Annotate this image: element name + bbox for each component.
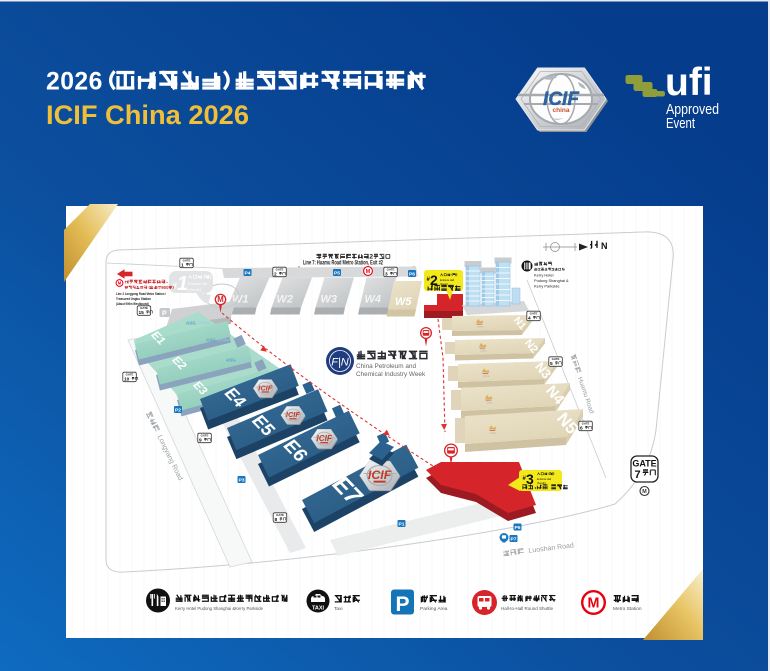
svg-text:CHINA: CHINA	[197, 321, 211, 326]
svg-text:Metro Station: Metro Station	[613, 606, 642, 612]
svg-text:Kerry Hotel: Kerry Hotel	[534, 273, 554, 278]
svg-text:GATE: GATE	[276, 268, 284, 272]
svg-text:GATE: GATE	[140, 306, 148, 310]
svg-text:Kerry Hotel Pudong Shanghai &K: Kerry Hotel Pudong Shanghai &Kerry Parks…	[175, 606, 263, 612]
svg-text:8: 8	[274, 517, 277, 523]
svg-text:Event: Event	[666, 116, 695, 132]
svg-text:0: 0	[60, 68, 74, 95]
svg-text:China: China	[486, 401, 493, 404]
svg-text:F|N: F|N	[331, 357, 349, 369]
svg-text:GATE: GATE	[387, 268, 395, 272]
svg-text:2: 2	[274, 272, 277, 278]
svg-text:ICIF: ICIF	[286, 410, 300, 419]
svg-text:ICIF: ICIF	[368, 468, 392, 482]
svg-text:ASG: ASG	[186, 321, 196, 326]
svg-text:(South): (South)	[188, 287, 202, 292]
svg-text:P3: P3	[238, 477, 244, 483]
svg-text:3: 3	[385, 272, 388, 278]
svg-text:China: China	[483, 375, 490, 378]
svg-text:W3: W3	[321, 294, 338, 306]
svg-text:P6: P6	[409, 271, 415, 277]
svg-text:China Petroleum and: China Petroleum and	[356, 363, 416, 370]
svg-text:2: 2	[74, 68, 88, 95]
svg-text:GATE: GATE	[276, 513, 284, 517]
svg-text:GATE: GATE	[183, 259, 191, 263]
svg-text:P2: P2	[175, 407, 181, 413]
svg-text:Pudong Shanghai &: Pudong Shanghai &	[534, 278, 569, 283]
svg-text:M: M	[118, 280, 122, 285]
svg-text:M: M	[217, 295, 224, 304]
svg-text:GATE: GATE	[201, 434, 209, 438]
svg-text:Line 7: Huamu Road Metro Stati: Line 7: Huamu Road Metro Station, Exit #…	[303, 261, 383, 267]
svg-text:2: 2	[46, 68, 60, 95]
svg-text:W5: W5	[395, 296, 412, 308]
svg-text:Chemical Industry Week: Chemical Industry Week	[356, 371, 426, 378]
svg-text:GATE: GATE	[582, 422, 590, 426]
svg-text:6: 6	[580, 426, 583, 432]
svg-text:GATE: GATE	[552, 357, 560, 361]
svg-text:Taxi: Taxi	[334, 606, 343, 612]
svg-text:P6: P6	[514, 525, 520, 531]
svg-text:M: M	[642, 489, 647, 495]
svg-text:GATE: GATE	[632, 459, 656, 469]
svg-text:P1: P1	[398, 521, 404, 527]
svg-text:CHINA: CHINA	[237, 358, 251, 363]
svg-text:China: China	[490, 432, 497, 435]
svg-text:7: 7	[635, 469, 641, 481]
svg-text:W2: W2	[277, 294, 294, 306]
svg-text:10: 10	[124, 377, 130, 383]
svg-text:M: M	[588, 596, 600, 612]
svg-text:CHINA: CHINA	[217, 338, 231, 343]
svg-text:ICIF: ICIF	[258, 383, 272, 392]
svg-text:Kerry Parkside: Kerry Parkside	[534, 284, 560, 289]
svg-text:5: 5	[550, 361, 553, 367]
svg-text:GATE: GATE	[126, 373, 134, 377]
svg-text:4: 4	[528, 316, 531, 322]
svg-text:N: N	[601, 241, 608, 251]
svg-text:6: 6	[89, 68, 103, 95]
svg-text:GATE: GATE	[530, 312, 538, 316]
svg-text:Entrance Hall: Entrance Hall	[188, 281, 207, 286]
svg-text:China: China	[477, 325, 484, 328]
svg-text:ICIF China 2026: ICIF China 2026	[46, 100, 249, 130]
svg-text:China: China	[480, 349, 487, 352]
svg-text:ufi: ufi	[665, 61, 713, 104]
svg-text:P: P	[395, 593, 409, 616]
svg-text:W4: W4	[365, 294, 382, 306]
svg-text:china: china	[553, 107, 570, 114]
svg-text:1: 1	[177, 273, 188, 295]
svg-text:ICIF: ICIF	[316, 434, 332, 443]
svg-text:9: 9	[199, 438, 202, 444]
svg-text:P4: P4	[244, 270, 250, 276]
svg-text:15: 15	[138, 310, 144, 316]
svg-text:1: 1	[181, 263, 184, 269]
svg-text:Parking Area: Parking Area	[420, 606, 448, 612]
svg-text:M: M	[366, 269, 371, 275]
svg-text:TAXI: TAXI	[312, 606, 325, 612]
svg-text:P7: P7	[510, 536, 516, 542]
svg-text:ASG: ASG	[226, 358, 236, 363]
svg-text:ASG: ASG	[206, 338, 216, 343]
svg-text:Hall-to-Hall Round Shuttle: Hall-to-Hall Round Shuttle	[501, 606, 553, 612]
svg-text:P5: P5	[334, 270, 340, 276]
svg-text:P: P	[162, 311, 167, 318]
